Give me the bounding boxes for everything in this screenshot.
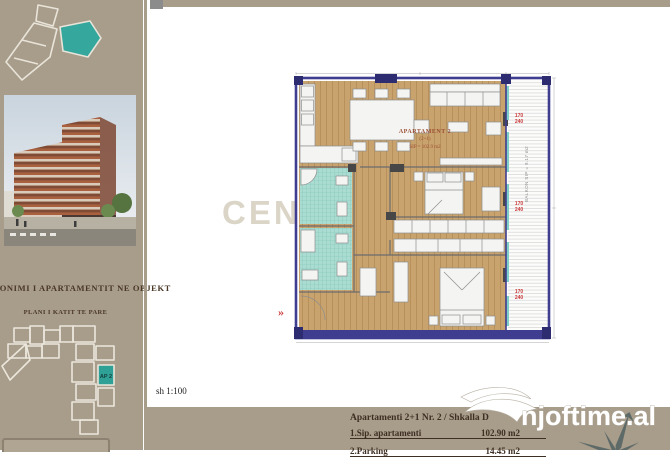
floor-plan: APARTAMENT 2 (2+1) SIP = 102.9 m2 170 24… bbox=[290, 72, 558, 344]
brand-text: njoftime.al bbox=[521, 401, 656, 431]
key-plan-map: AP 2 bbox=[0, 322, 120, 448]
sidebar-subtitle: PLANI I KATIT TE PARE bbox=[8, 309, 123, 316]
entry-arrow-icon: » bbox=[278, 305, 284, 320]
top-gray-marker bbox=[150, 0, 163, 9]
plan-sheet: { "sidebar": { "title": "CIONIMI I APART… bbox=[0, 0, 670, 450]
window-dimension: 170 240 bbox=[512, 290, 526, 301]
apartment-area: SIP = 102.9 m2 bbox=[385, 144, 465, 152]
sink bbox=[336, 176, 348, 185]
toilet bbox=[337, 202, 347, 216]
table-row: 2.Parking 14.45 m2 bbox=[350, 446, 546, 457]
panel-divider bbox=[144, 0, 147, 450]
apartment-name: APARTAMENT 2 bbox=[385, 128, 465, 136]
site-plan-map bbox=[0, 0, 140, 90]
window-dimension: 170 240 bbox=[512, 202, 526, 213]
scale-note: sh 1:100 bbox=[156, 386, 187, 396]
balcony-label: BALKON SIP = 9.17 m2 bbox=[524, 142, 529, 202]
highlighted-building bbox=[60, 21, 101, 57]
window-dimension: 170 240 bbox=[512, 114, 526, 125]
shower-2 bbox=[301, 230, 315, 252]
brand-watermark: njoftime.al bbox=[455, 383, 670, 433]
sidebar-title: CIONIMI I APARTAMENTIT NE OBJEKT bbox=[0, 283, 195, 293]
row-value: 14.45 m2 bbox=[486, 446, 547, 456]
top-band bbox=[150, 0, 670, 7]
row-label: 2.Parking bbox=[350, 446, 388, 456]
apartment-type: (2+1) bbox=[385, 136, 465, 144]
bathrooms bbox=[300, 168, 352, 290]
apartment-label: APARTAMENT 2 (2+1) SIP = 102.9 m2 bbox=[385, 128, 465, 152]
building-photo bbox=[4, 95, 136, 246]
row-label: 1.Sip. apartamenti bbox=[350, 428, 421, 438]
sidebar: CIONIMI I APARTAMENTIT NE OBJEKT PLANI I… bbox=[0, 0, 143, 450]
right-building bbox=[62, 117, 100, 227]
unit-label: AP 2 bbox=[100, 374, 112, 380]
